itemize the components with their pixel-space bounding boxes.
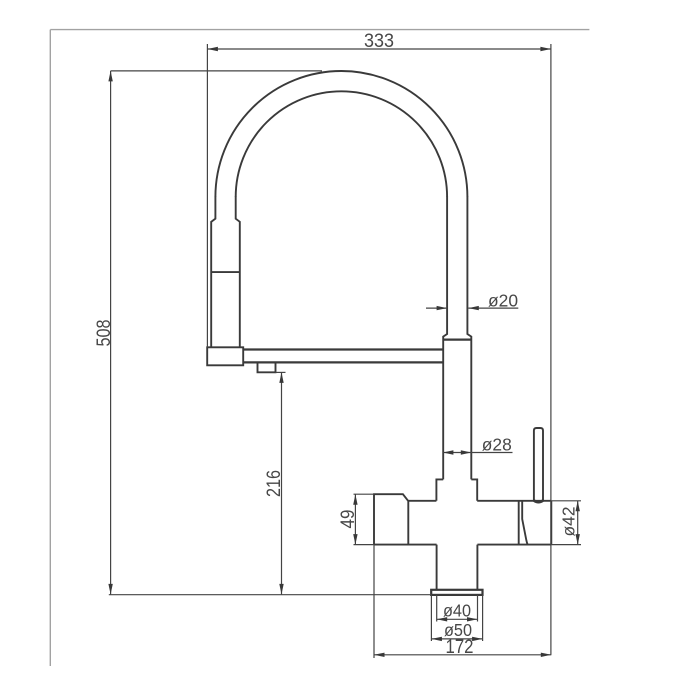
svg-text:ø28: ø28 bbox=[482, 435, 512, 455]
svg-text:ø42: ø42 bbox=[559, 507, 579, 537]
svg-text:333: 333 bbox=[364, 31, 394, 52]
svg-text:508: 508 bbox=[94, 320, 115, 347]
svg-text:ø40: ø40 bbox=[443, 601, 471, 621]
svg-text:172: 172 bbox=[446, 637, 474, 658]
svg-text:49: 49 bbox=[338, 510, 359, 529]
svg-text:216: 216 bbox=[264, 470, 285, 497]
svg-text:ø20: ø20 bbox=[488, 291, 518, 311]
